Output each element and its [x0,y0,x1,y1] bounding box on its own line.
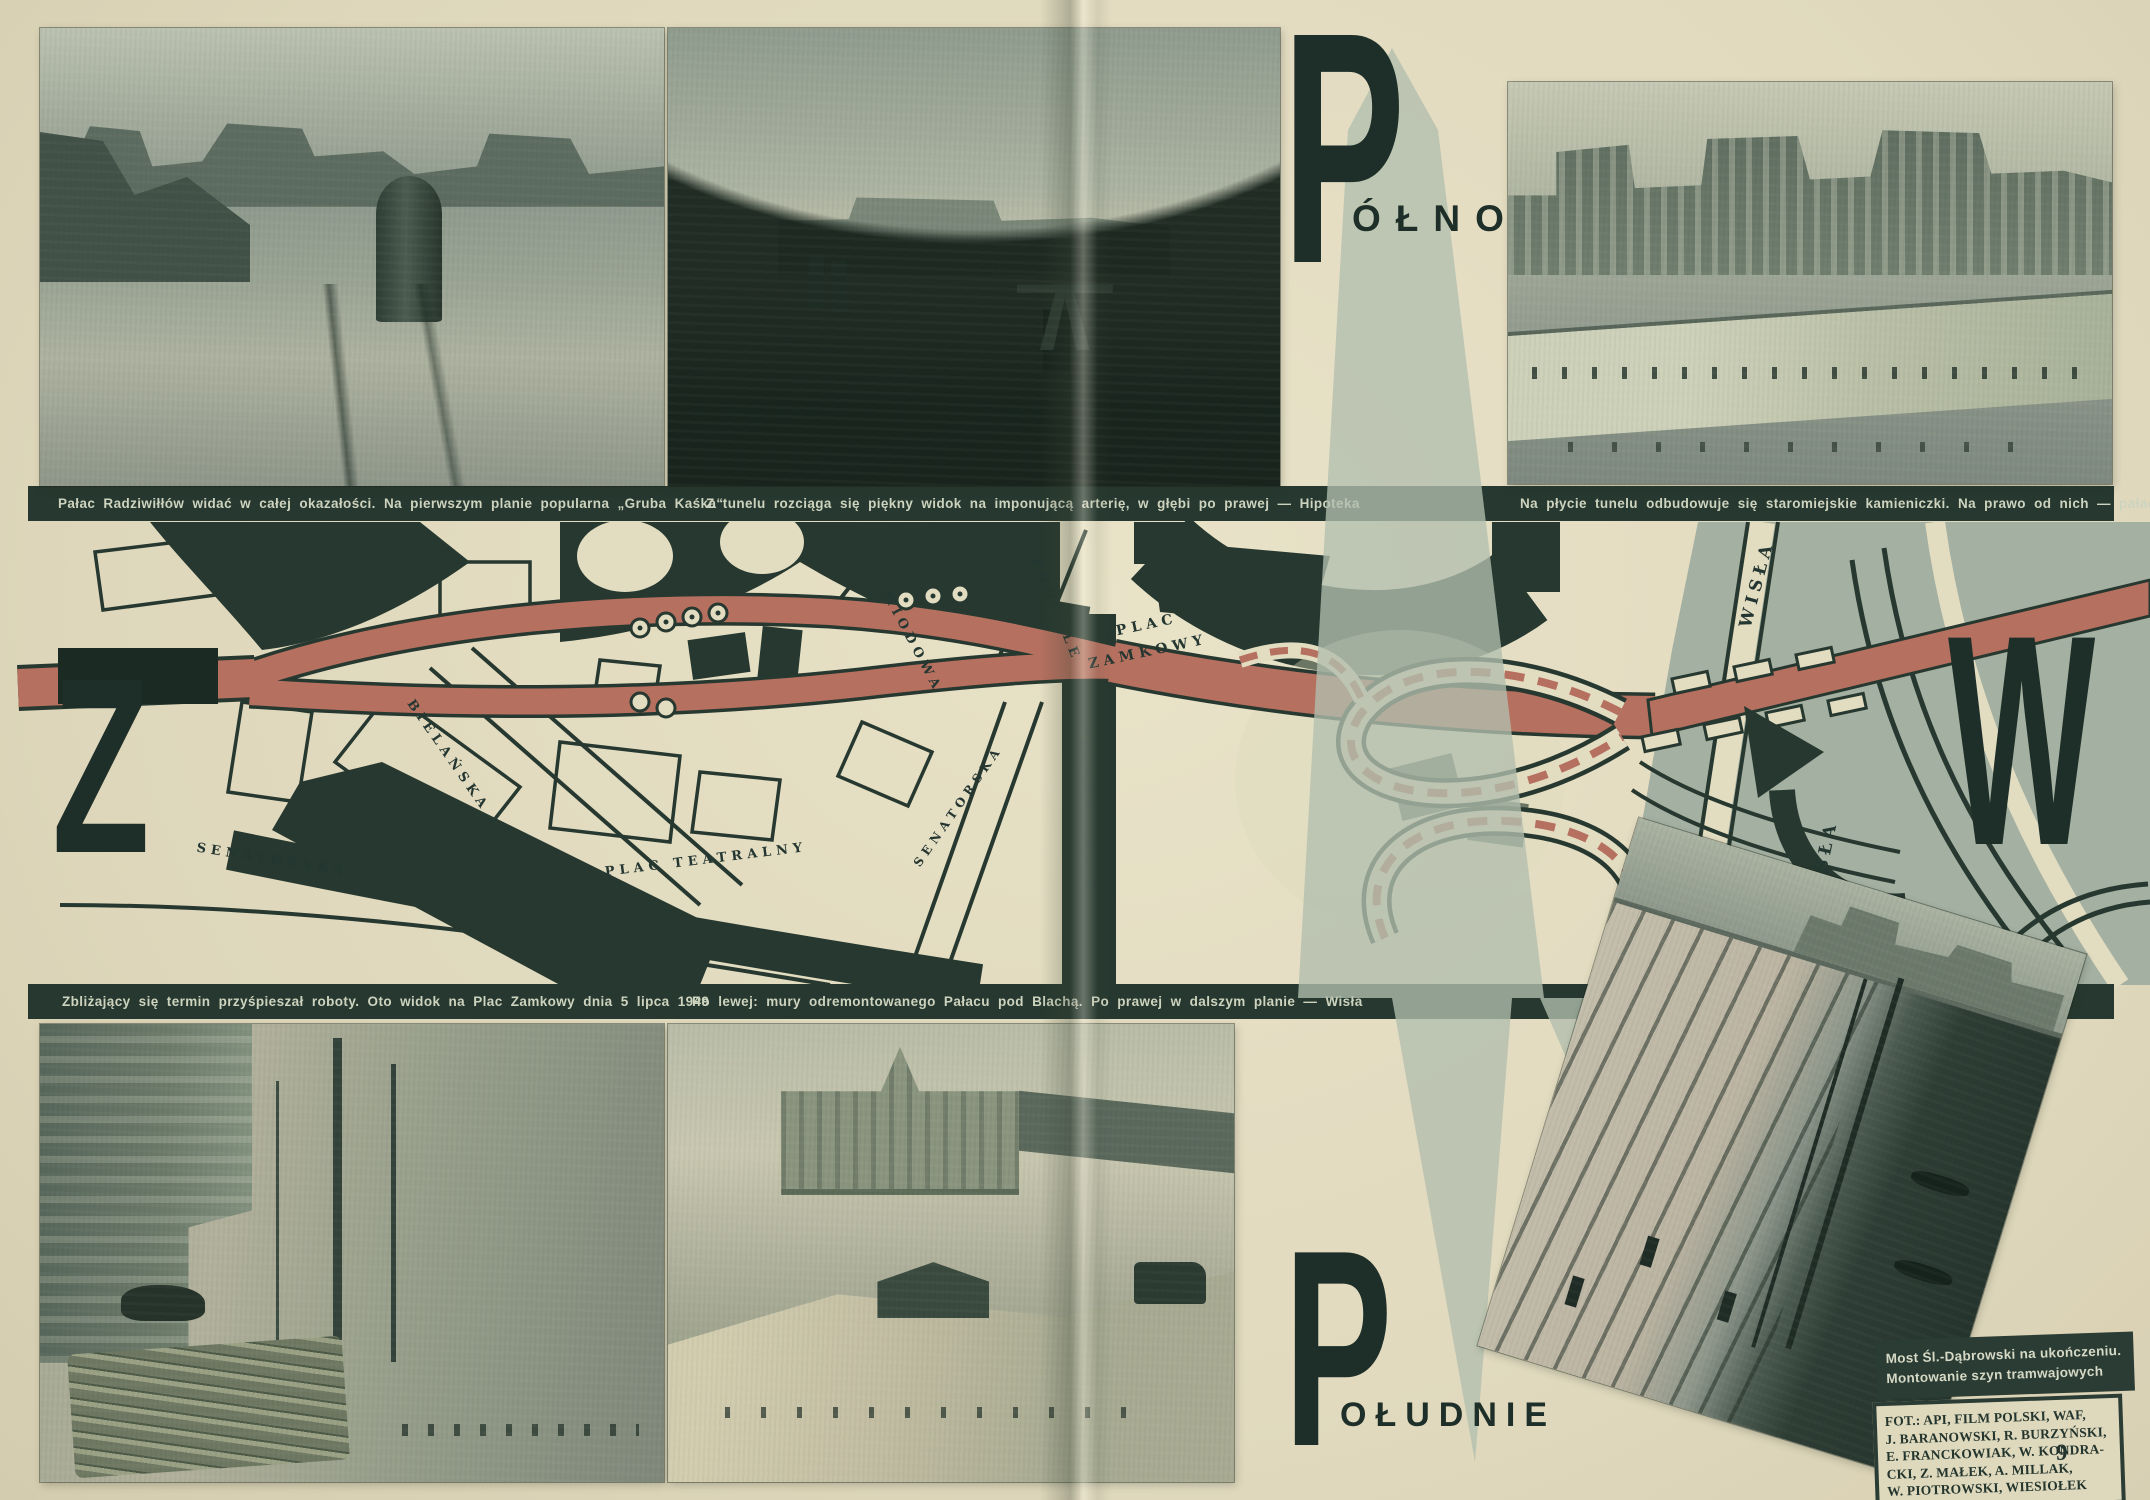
caption-top-left: Pałac Radziwiłłów widać w całej okazałoś… [58,496,724,511]
caption-middle-left: Zbliżający się termin przyśpieszał robot… [62,994,709,1009]
magazine-spread: BIELAŃSKASENATORSKAPLAC TEATRALNYMIODOWA… [0,0,2150,1500]
photo-bottom-left-street [40,1024,664,1482]
photo-top-middle-tunnel-view [668,28,1280,486]
caption-middle-right: Po lewej: mury odremontowanego Pałacu po… [692,994,1363,1009]
photo-note-box: Most Śl.-Dąbrowski na ukończeniu. Montow… [1875,1332,2135,1399]
south-word-rest: OŁUDNIE [1340,1396,1556,1435]
caption-top-right: Na płycie tunelu odbudowuje się staromie… [1520,496,2150,511]
east-letter: W [1948,628,2095,853]
photo-top-right-embankment [1508,82,2112,484]
west-letter: Z [52,672,150,860]
credits-box: FOT.: API, FILM POLSKI, WAF,J. BARANOWSK… [1872,1394,2126,1500]
page-number: 9 [2056,1440,2068,1466]
photo-top-left-ruins [40,28,664,486]
photo-bottom-middle-construction [668,1024,1234,1482]
caption-top-middle: Z tunelu rozciąga się piękny widok na im… [706,496,1360,511]
